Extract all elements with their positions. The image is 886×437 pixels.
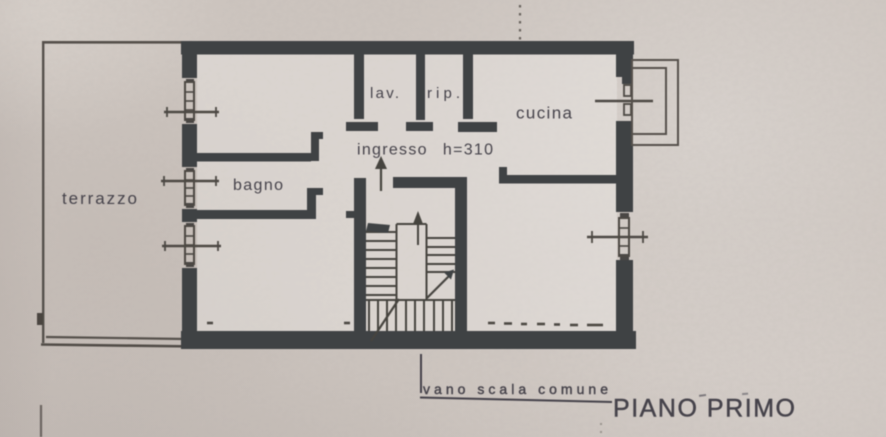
svg-text:vano scala comune: vano scala comune bbox=[423, 381, 608, 397]
svg-text:terrazzo: terrazzo bbox=[62, 189, 137, 208]
svg-text:PIANO PRIMO: PIANO PRIMO bbox=[613, 395, 795, 423]
svg-text:cucina: cucina bbox=[516, 104, 573, 123]
svg-text:rip.: rip. bbox=[427, 85, 460, 102]
svg-text:bagno: bagno bbox=[233, 177, 283, 194]
